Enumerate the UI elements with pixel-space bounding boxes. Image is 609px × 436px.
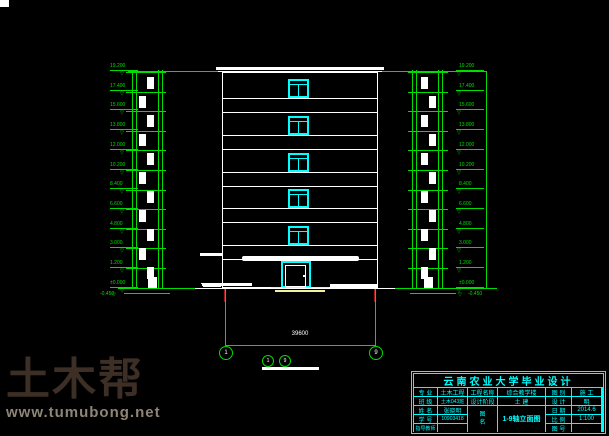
tb-value-drawingno — [572, 424, 601, 432]
level-triangle-icon: ▽ — [457, 248, 465, 255]
dimension-value: 39600 — [285, 331, 315, 339]
elevation-value: 12.000 — [110, 142, 138, 149]
stair-tower-wall-line — [412, 70, 413, 288]
stair-window — [139, 96, 146, 108]
elevation-value: 15.600 — [110, 102, 138, 109]
floor-line — [223, 172, 377, 173]
stair-window — [429, 172, 436, 184]
tb-label-class: 班 级 — [414, 397, 437, 405]
level-triangle-icon: ▽ — [457, 209, 465, 216]
side-canopy — [200, 253, 222, 256]
floor-line — [223, 135, 377, 136]
tb-value-major: 土木工程 — [438, 388, 467, 396]
landing-tick-line — [408, 131, 448, 132]
level-triangle-icon: ▽ — [457, 170, 465, 177]
title-underline — [262, 367, 319, 370]
elevation-value: 10.200 — [459, 162, 487, 169]
stair-base-door — [424, 277, 433, 288]
watermark: 土木帮 www.tumubong.net — [6, 356, 161, 421]
elevation-value: 8.400 — [459, 181, 487, 188]
landing-tick-line — [408, 268, 448, 269]
title-block: 云南农业大学毕业设计 专 业 土木工程 工程名称 综合教学楼 图 别 施 工 班… — [411, 371, 606, 434]
tb-label-designer: 设 计 — [546, 397, 571, 405]
stair-tower-wall-line — [136, 70, 137, 288]
stair-window — [139, 172, 146, 184]
title-axis-bubble: 1 — [262, 355, 274, 367]
landing-tick-line — [126, 170, 166, 171]
level-triangle-icon: ▽ — [120, 170, 128, 177]
cad-canvas: 19.200▽19.200▽17.400▽17.400▽15.600▽15.60… — [0, 0, 609, 436]
landing-tick-line — [126, 229, 166, 230]
landing-tick-line — [126, 92, 166, 93]
stair-tower-wall-line — [132, 70, 133, 288]
landing-tick-line — [408, 92, 448, 93]
elevation-value: ±0.000 — [459, 280, 487, 287]
stair-window — [429, 248, 436, 260]
landing-tick-line — [126, 131, 166, 132]
tb-label-date: 日 期 — [546, 406, 571, 414]
roof-connector-line — [128, 71, 222, 72]
tb-value-scale: 1:100 — [572, 415, 601, 423]
stair-window — [147, 115, 154, 127]
floor-line — [223, 222, 377, 223]
tb-value-name: 张晓明 — [438, 406, 467, 414]
elevation-value: 17.400 — [459, 83, 487, 90]
level-triangle-icon: ▽ — [457, 268, 465, 275]
tb-label-project: 工程名称 — [468, 388, 497, 396]
right-boundary-line — [486, 71, 487, 288]
tb-label-stage: 设计阶段 — [468, 397, 497, 405]
tb-value-advisor — [438, 424, 467, 432]
landing-tick-line — [126, 248, 166, 249]
level-triangle-icon: ▽ — [457, 71, 465, 78]
elevation-value: 19.200 — [110, 63, 138, 70]
side-step — [203, 286, 221, 287]
tb-value-number: 10903418 — [438, 415, 467, 423]
elevation-value: 4.800 — [110, 221, 138, 228]
floor-line — [223, 208, 377, 209]
roof-connector-line — [379, 71, 486, 72]
stair-window — [147, 229, 154, 241]
stair-tower-wall-line — [162, 70, 163, 288]
level-triangle-icon: ▽ — [120, 229, 128, 236]
stair-window — [421, 191, 428, 203]
window-mullion — [298, 195, 299, 208]
stair-tower-wall-line — [438, 70, 439, 288]
tb-label-name: 姓 名 — [414, 406, 437, 414]
stair-window — [147, 191, 154, 203]
tb-label-number: 学 号 — [414, 415, 437, 423]
landing-tick-line — [408, 111, 448, 112]
door-handle — [303, 275, 305, 277]
ground-line — [395, 288, 497, 289]
watermark-brand: 土木帮 — [6, 356, 161, 404]
tb-label-sheetname-2: 名 — [479, 419, 485, 427]
titleblock-grid: 专 业 土木工程 工程名称 综合教学楼 图 别 施 工 班 级 土木043班 设… — [414, 387, 603, 432]
elevation-value: 3.000 — [110, 240, 138, 247]
dimension-extension-line — [375, 289, 376, 346]
tb-label-scale: 比 例 — [546, 415, 571, 423]
elevation-value: 15.600 — [459, 102, 487, 109]
elevation-value: 6.600 — [459, 201, 487, 208]
elevation-value: 19.200 — [459, 63, 487, 70]
basement-elevation-value: -0.450 — [468, 291, 492, 298]
elevation-value: 6.600 — [110, 201, 138, 208]
foundation-line — [124, 293, 170, 294]
floor-line — [223, 245, 377, 246]
dimension-extension-line — [225, 289, 226, 346]
landing-tick-line — [126, 150, 166, 151]
floor-line — [223, 186, 377, 187]
elevation-value: 8.400 — [110, 181, 138, 188]
elevation-value: 10.200 — [110, 162, 138, 169]
landing-tick-line — [126, 72, 166, 73]
stair-window — [421, 229, 428, 241]
landing-tick-line — [408, 229, 448, 230]
stair-window — [147, 153, 154, 165]
level-triangle-icon: ▽ — [457, 130, 465, 137]
landing-tick-line — [126, 111, 166, 112]
stair-window — [421, 115, 428, 127]
entrance-step — [275, 290, 325, 292]
window-mullion — [298, 85, 299, 98]
tb-value-sheetname: 1-9轴立面图 — [498, 406, 545, 432]
stair-window — [429, 210, 436, 222]
landing-tick-line — [408, 190, 448, 191]
stair-window — [139, 210, 146, 222]
stair-window — [139, 134, 146, 146]
level-triangle-icon: ▽ — [457, 91, 465, 98]
level-triangle-icon: ▽ — [112, 292, 120, 299]
elevation-value: 1.200 — [459, 260, 487, 267]
title-axis-bubble: 9 — [279, 355, 291, 367]
landing-tick-line — [126, 268, 166, 269]
landing-tick-line — [408, 209, 448, 210]
tb-value-designer: 明 — [572, 397, 601, 405]
axis-bubble: 9 — [369, 346, 383, 360]
side-step — [201, 283, 221, 284]
level-triangle-icon: ▽ — [457, 150, 465, 157]
tb-value-date: 2014.6 — [572, 406, 601, 414]
elevation-value: 13.800 — [459, 122, 487, 129]
level-triangle-icon: ▽ — [120, 248, 128, 255]
window-mullion — [298, 122, 299, 135]
stair-tower-wall-line — [416, 70, 417, 288]
tb-value-stage: 土 建 — [498, 397, 545, 405]
tb-label-sheetname-1: 图 — [479, 411, 485, 419]
window-mullion — [298, 159, 299, 172]
stair-window — [147, 77, 154, 89]
landing-tick-line — [126, 190, 166, 191]
stair-window — [139, 248, 146, 260]
stair-window — [421, 77, 428, 89]
floor-line — [223, 149, 377, 150]
tb-value-project: 综合教学楼 — [498, 388, 545, 396]
stair-tower-wall-line — [158, 70, 159, 288]
elevation-value: 12.000 — [459, 142, 487, 149]
stair-window — [429, 134, 436, 146]
elevation-value: ±0.000 — [110, 280, 138, 287]
tb-value-sheettype: 施 工 — [572, 388, 601, 396]
level-triangle-icon: ▽ — [120, 150, 128, 157]
floor-line — [223, 98, 377, 99]
stair-base-door — [148, 277, 157, 288]
stair-window — [421, 153, 428, 165]
stair-tower-wall-line — [442, 70, 443, 288]
tb-label-sheettype: 图 别 — [546, 388, 571, 396]
landing-tick-line — [408, 170, 448, 171]
foundation-line — [410, 293, 456, 294]
level-triangle-icon: ▽ — [457, 229, 465, 236]
landing-tick-line — [408, 248, 448, 249]
corner-marker — [0, 0, 9, 7]
level-triangle-icon: ▽ — [458, 292, 466, 299]
title-block-inner: 云南农业大学毕业设计 专 业 土木工程 工程名称 综合教学楼 图 别 施 工 班… — [413, 373, 604, 432]
level-triangle-icon: ▽ — [120, 268, 128, 275]
elevation-value: 13.800 — [110, 122, 138, 129]
landing-tick-line — [408, 150, 448, 151]
tb-label-drawingno: 图 号 — [546, 424, 571, 432]
elevation-value: 1.200 — [110, 260, 138, 267]
elevation-value: 4.800 — [459, 221, 487, 228]
parapet-coping — [216, 67, 384, 70]
elevation-value: 3.000 — [459, 240, 487, 247]
tb-label-sheetname: 图 名 — [468, 406, 497, 432]
watermark-url: www.tumubong.net — [6, 404, 161, 421]
elevation-value: 17.400 — [110, 83, 138, 90]
dimension-line — [225, 345, 376, 346]
landing-tick-line — [408, 72, 448, 73]
level-triangle-icon: ▽ — [120, 209, 128, 216]
stair-window — [429, 96, 436, 108]
tb-label-advisor: 指导教师 — [414, 424, 437, 432]
landing-tick-line — [126, 209, 166, 210]
window-mullion — [298, 232, 299, 245]
level-triangle-icon: ▽ — [457, 110, 465, 117]
tb-label-major: 专 业 — [414, 388, 437, 396]
level-triangle-icon: ▽ — [457, 189, 465, 196]
floor-line — [223, 112, 377, 113]
axis-bubble: 1 — [219, 346, 233, 360]
titleblock-title: 云南农业大学毕业设计 — [414, 374, 603, 387]
tb-value-class: 土木043班 — [438, 397, 467, 405]
ground-line — [118, 288, 198, 289]
